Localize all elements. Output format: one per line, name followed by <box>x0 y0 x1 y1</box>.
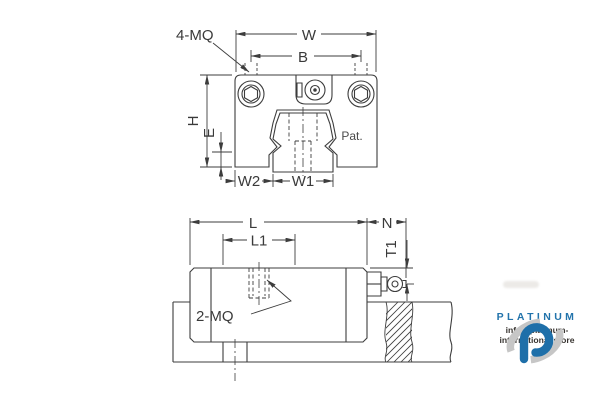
dim-label-4mq: 4-MQ <box>176 27 214 44</box>
dim-label-t1: T1 <box>383 240 400 258</box>
dim-label-h: H <box>185 116 202 127</box>
dim-label-w1: W1 <box>292 173 315 190</box>
screenshot-page: 4-MQ W B H E W2 W1 Pat. <box>0 0 600 400</box>
grease-nipple-side-icon <box>367 272 406 296</box>
platinum-logo-icon <box>472 314 600 368</box>
rail-break-line-right <box>450 302 452 362</box>
pat-label: Pat. <box>341 129 362 143</box>
dim-label-l1: L1 <box>251 233 268 250</box>
logo-p-glyph <box>524 327 549 359</box>
dim-label-e: E <box>201 128 218 138</box>
break-wavy-right <box>411 302 413 362</box>
front-view <box>235 63 377 176</box>
platinum-branding: PLATINUM info@platinum-international.sto… <box>472 314 600 345</box>
dim-label-w2: W2 <box>238 173 261 190</box>
watermark-smudge <box>503 281 539 288</box>
dim-label-n: N <box>382 215 393 232</box>
socket-bolt-right-icon <box>348 81 374 107</box>
leader-4mq <box>213 43 249 72</box>
dim-label-2mq: 2-MQ <box>196 308 234 325</box>
section-hatching <box>338 302 468 362</box>
dim-label-w: W <box>302 27 317 44</box>
front-view-dimensions <box>200 30 376 187</box>
leader-2mq <box>251 280 291 314</box>
socket-bolt-left-icon <box>238 81 264 107</box>
side-view-dimensions <box>190 218 414 314</box>
logo-swirl <box>504 315 565 368</box>
carriage-block-outline <box>235 75 377 167</box>
grease-nipple-front-icon <box>296 75 332 104</box>
dim-label-l: L <box>249 215 257 232</box>
dim-label-b: B <box>298 49 308 66</box>
break-wavy-left <box>385 302 387 362</box>
